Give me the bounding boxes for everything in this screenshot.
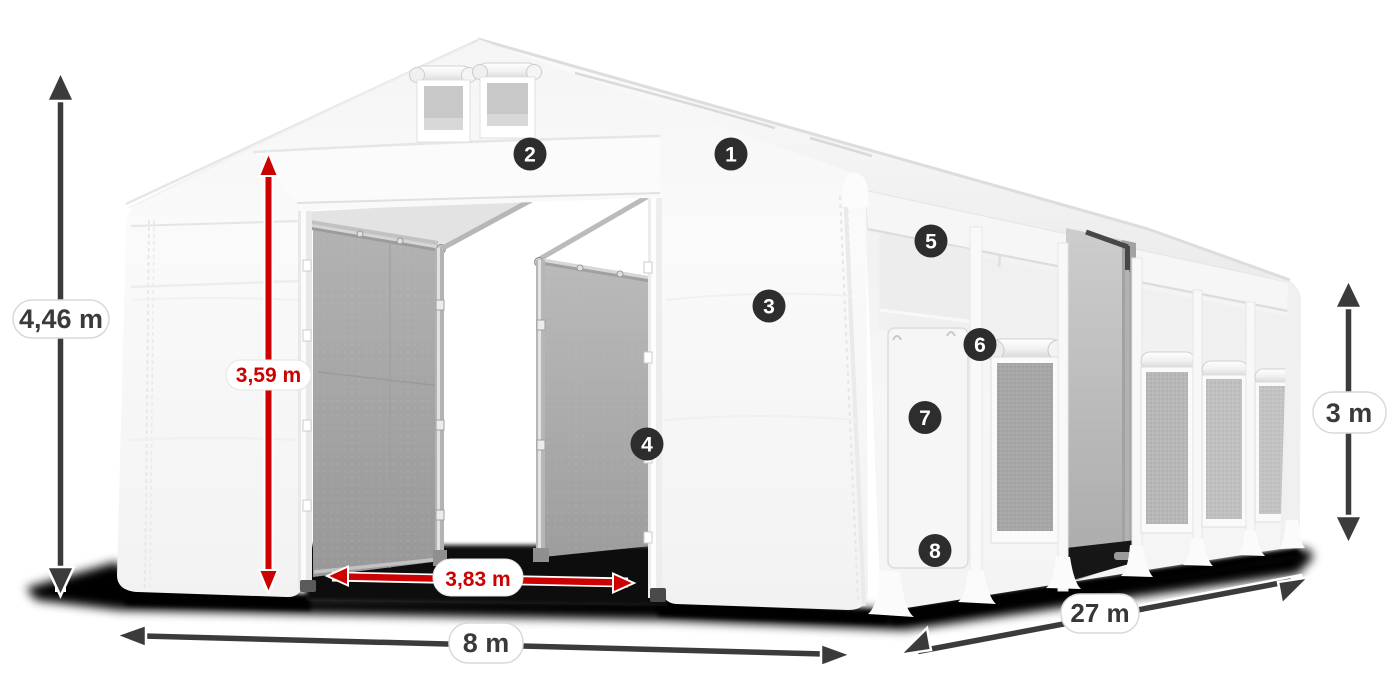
svg-text:3,83 m: 3,83 m <box>445 568 510 591</box>
svg-text:4,46 m: 4,46 m <box>19 304 103 334</box>
svg-text:7: 7 <box>919 407 931 430</box>
svg-text:3: 3 <box>763 296 775 319</box>
svg-text:1: 1 <box>725 144 737 167</box>
svg-text:5: 5 <box>925 231 937 254</box>
svg-text:8 m: 8 m <box>463 628 510 658</box>
svg-text:4: 4 <box>641 434 653 457</box>
svg-text:2: 2 <box>524 144 536 167</box>
svg-text:3 m: 3 m <box>1326 398 1373 428</box>
svg-text:3,59 m: 3,59 m <box>236 364 301 387</box>
svg-text:27 m: 27 m <box>1070 598 1129 628</box>
svg-text:8: 8 <box>929 540 941 563</box>
svg-text:6: 6 <box>974 334 986 357</box>
